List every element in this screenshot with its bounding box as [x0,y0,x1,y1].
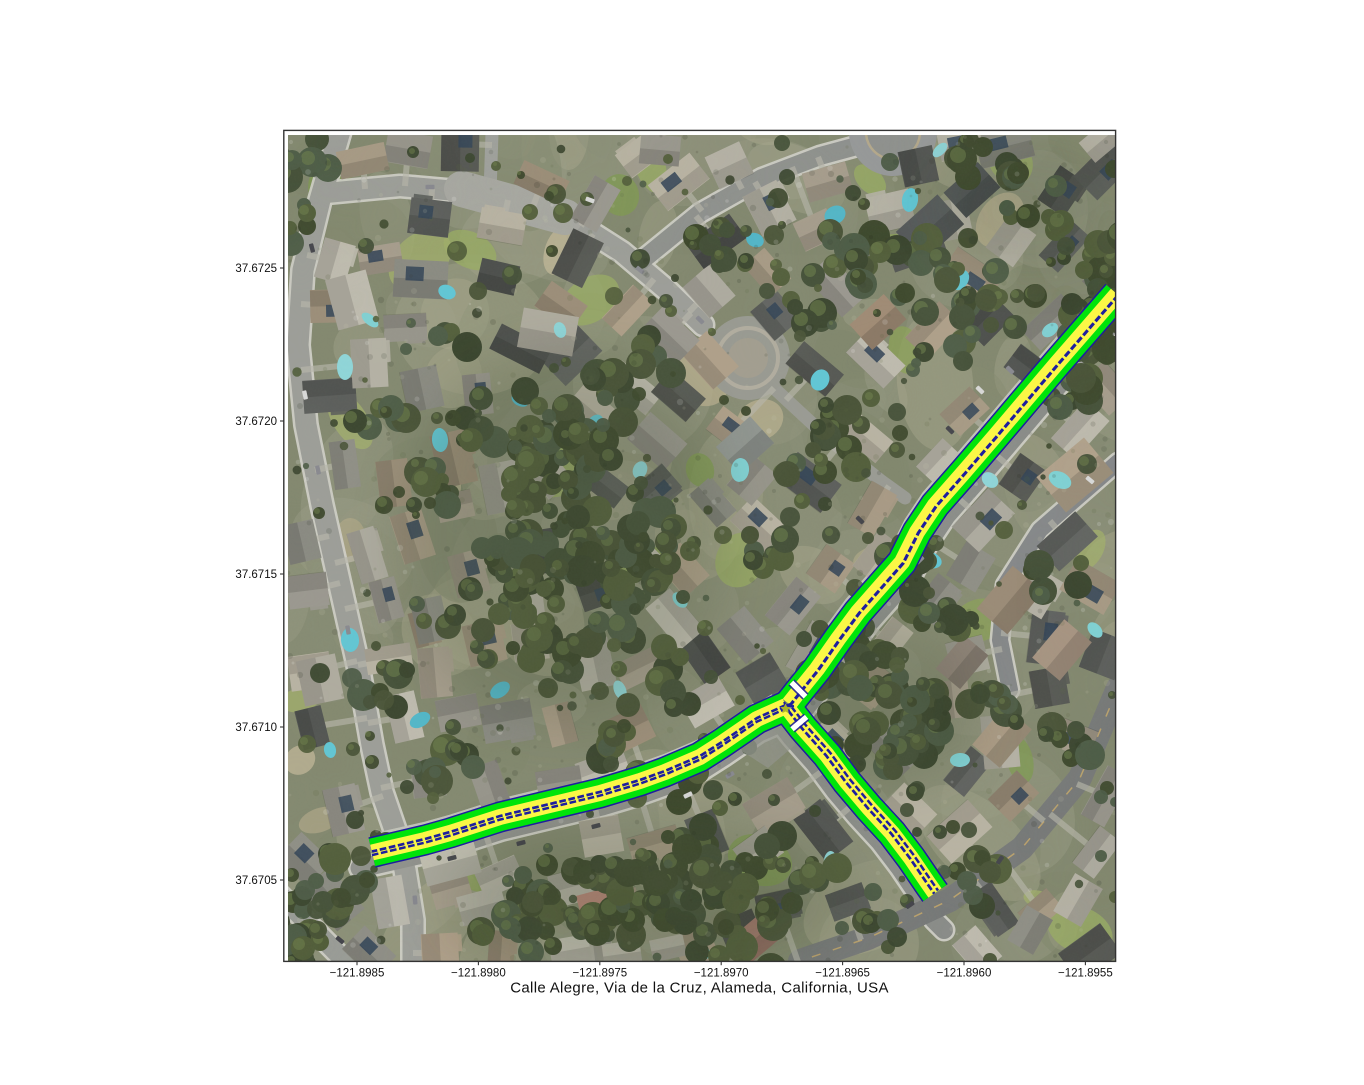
svg-text:37.6720: 37.6720 [235,416,277,428]
svg-text:−121.8985: −121.8985 [330,967,385,979]
svg-text:−121.8960: −121.8960 [937,967,992,979]
svg-text:−121.8980: −121.8980 [451,967,506,979]
svg-text:37.6710: 37.6710 [235,722,277,734]
svg-text:−121.8955: −121.8955 [1058,967,1113,979]
svg-text:37.6725: 37.6725 [235,263,277,275]
svg-text:−121.8970: −121.8970 [694,967,749,979]
svg-text:Calle Alegre, Via de la Cruz,: Calle Alegre, Via de la Cruz, Alameda, C… [510,980,889,997]
svg-text:37.6715: 37.6715 [235,569,277,581]
svg-text:−121.8965: −121.8965 [815,967,870,979]
svg-text:−121.8975: −121.8975 [572,967,627,979]
svg-text:37.6705: 37.6705 [235,875,277,887]
